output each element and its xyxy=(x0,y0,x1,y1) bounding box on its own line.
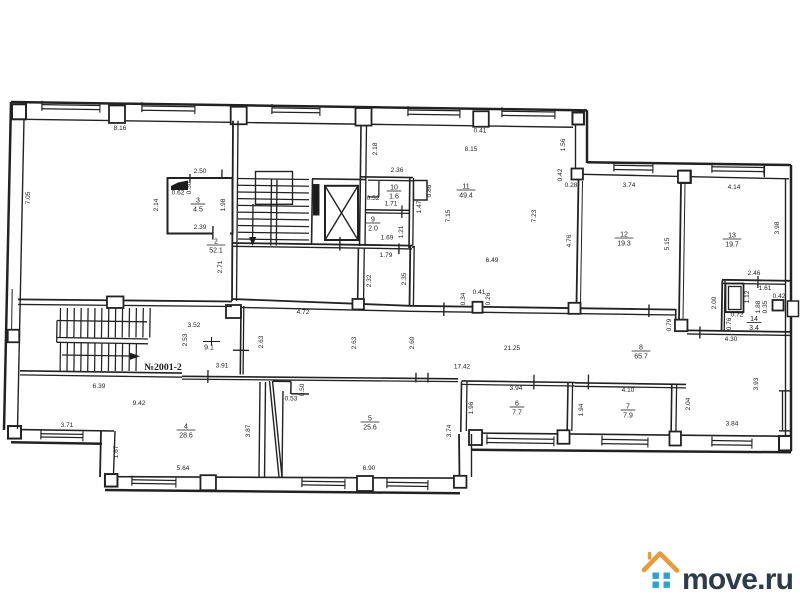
svg-text:4.10: 4.10 xyxy=(622,387,635,394)
svg-text:1.6: 1.6 xyxy=(389,194,399,201)
svg-text:17.42: 17.42 xyxy=(454,364,471,371)
svg-text:1.21: 1.21 xyxy=(398,225,405,238)
svg-text:1.12: 1.12 xyxy=(744,290,751,303)
svg-text:1.98: 1.98 xyxy=(220,198,227,211)
svg-text:7.05: 7.05 xyxy=(25,191,32,204)
svg-text:8.15: 8.15 xyxy=(465,146,478,153)
svg-text:0.76: 0.76 xyxy=(726,317,733,330)
svg-text:2.35: 2.35 xyxy=(401,272,408,285)
svg-text:2.04: 2.04 xyxy=(685,397,692,410)
svg-text:19.3: 19.3 xyxy=(617,241,631,248)
svg-text:6.39: 6.39 xyxy=(93,383,106,390)
svg-text:3.74: 3.74 xyxy=(623,182,636,189)
svg-text:2.50: 2.50 xyxy=(194,168,207,175)
svg-text:3.91: 3.91 xyxy=(216,363,229,370)
svg-text:№2001-2: №2001-2 xyxy=(144,362,182,373)
svg-text:7.9: 7.9 xyxy=(623,413,633,420)
svg-text:0.26: 0.26 xyxy=(485,292,492,305)
svg-text:0.50: 0.50 xyxy=(299,383,306,396)
svg-text:0.79: 0.79 xyxy=(666,318,673,331)
svg-text:12: 12 xyxy=(620,232,628,239)
svg-text:move.ru: move.ru xyxy=(682,563,793,595)
svg-text:2.00: 2.00 xyxy=(711,296,718,309)
svg-text:14: 14 xyxy=(750,316,758,323)
svg-text:10: 10 xyxy=(390,185,398,192)
svg-text:4.72: 4.72 xyxy=(297,309,310,316)
svg-text:0.52: 0.52 xyxy=(367,195,380,202)
svg-text:2.63: 2.63 xyxy=(351,336,358,349)
svg-text:3: 3 xyxy=(196,198,200,205)
svg-text:0.41: 0.41 xyxy=(474,128,487,135)
svg-text:6.49: 6.49 xyxy=(486,257,499,264)
svg-text:3.87: 3.87 xyxy=(245,424,252,437)
svg-text:2.36: 2.36 xyxy=(391,167,404,174)
svg-text:19.7: 19.7 xyxy=(725,242,739,249)
svg-text:7.15: 7.15 xyxy=(445,209,452,222)
svg-text:6: 6 xyxy=(515,401,519,408)
svg-text:8: 8 xyxy=(639,345,643,352)
svg-text:5: 5 xyxy=(368,416,372,423)
svg-text:0.35: 0.35 xyxy=(762,300,769,313)
svg-text:3.93: 3.93 xyxy=(753,377,760,390)
svg-text:0.34: 0.34 xyxy=(460,292,467,305)
svg-text:0.42: 0.42 xyxy=(773,293,786,300)
svg-text:3.84: 3.84 xyxy=(726,421,739,428)
svg-text:11: 11 xyxy=(462,184,469,191)
svg-text:2.0: 2.0 xyxy=(368,226,378,233)
svg-text:0.42: 0.42 xyxy=(557,168,564,181)
svg-text:0.28: 0.28 xyxy=(565,182,578,189)
svg-text:65.7: 65.7 xyxy=(634,354,648,361)
svg-text:8.16: 8.16 xyxy=(114,125,127,132)
svg-text:4: 4 xyxy=(184,424,188,431)
svg-text:1.67: 1.67 xyxy=(113,445,120,458)
svg-text:2.46: 2.46 xyxy=(748,270,761,277)
svg-text:3.52: 3.52 xyxy=(188,322,201,329)
svg-text:2.39: 2.39 xyxy=(194,224,207,231)
svg-text:4.30: 4.30 xyxy=(725,336,738,343)
svg-text:25.6: 25.6 xyxy=(363,425,377,432)
svg-text:2: 2 xyxy=(214,239,218,246)
svg-text:2.71: 2.71 xyxy=(217,260,224,273)
svg-text:0.86: 0.86 xyxy=(426,184,433,197)
svg-text:3.98: 3.98 xyxy=(774,221,781,234)
svg-text:2.53: 2.53 xyxy=(182,333,189,346)
svg-text:1.94: 1.94 xyxy=(578,403,585,416)
svg-text:13: 13 xyxy=(728,233,736,240)
svg-text:49.4: 49.4 xyxy=(459,193,473,200)
svg-text:9: 9 xyxy=(371,217,375,224)
svg-text:0.72: 0.72 xyxy=(731,312,744,319)
svg-text:3.4: 3.4 xyxy=(749,325,759,332)
svg-text:0.53: 0.53 xyxy=(285,396,298,403)
svg-text:0.41: 0.41 xyxy=(473,289,486,296)
svg-text:1.61: 1.61 xyxy=(759,285,772,292)
svg-text:28.6: 28.6 xyxy=(179,433,193,440)
svg-text:4.14: 4.14 xyxy=(728,184,741,191)
svg-text:3.94: 3.94 xyxy=(510,385,523,392)
svg-text:4.76: 4.76 xyxy=(566,234,573,247)
svg-text:9.42: 9.42 xyxy=(133,400,146,407)
svg-text:7.7: 7.7 xyxy=(512,410,522,417)
svg-text:52.1: 52.1 xyxy=(209,248,223,255)
svg-text:4.5: 4.5 xyxy=(193,207,203,214)
svg-text:2.60: 2.60 xyxy=(409,336,416,349)
svg-text:21.25: 21.25 xyxy=(504,345,521,352)
svg-text:2.14: 2.14 xyxy=(153,198,160,211)
svg-text:3.71: 3.71 xyxy=(61,422,74,429)
svg-text:7: 7 xyxy=(626,404,630,411)
svg-text:2.32: 2.32 xyxy=(366,274,373,287)
svg-text:5.15: 5.15 xyxy=(664,237,671,250)
svg-text:1.88: 1.88 xyxy=(755,300,762,313)
svg-text:0.30: 0.30 xyxy=(186,181,193,194)
svg-text:7.23: 7.23 xyxy=(531,209,538,222)
svg-text:6.90: 6.90 xyxy=(363,465,376,472)
svg-text:1.79: 1.79 xyxy=(380,252,393,259)
svg-text:3.74: 3.74 xyxy=(446,424,453,437)
svg-text:1.71: 1.71 xyxy=(385,201,398,208)
svg-text:5.64: 5.64 xyxy=(177,465,190,472)
svg-text:1.47: 1.47 xyxy=(416,200,423,213)
svg-text:0.62: 0.62 xyxy=(172,190,185,197)
svg-text:9.1: 9.1 xyxy=(204,345,214,352)
svg-text:1.56: 1.56 xyxy=(560,138,567,151)
svg-text:1.96: 1.96 xyxy=(468,401,475,414)
svg-text:1.69: 1.69 xyxy=(381,235,394,242)
svg-text:2.63: 2.63 xyxy=(258,335,265,348)
svg-text:2.18: 2.18 xyxy=(372,142,379,155)
